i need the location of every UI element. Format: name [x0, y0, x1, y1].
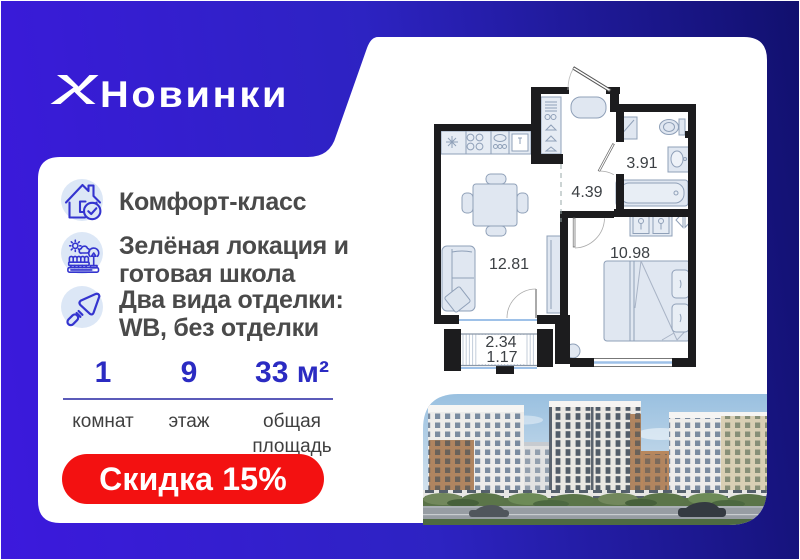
svg-text:10.98: 10.98 [610, 245, 650, 262]
svg-text:1.17: 1.17 [486, 349, 517, 366]
svg-text:3.91: 3.91 [626, 155, 657, 172]
svg-text:4.39: 4.39 [571, 184, 602, 201]
svg-text:12.81: 12.81 [489, 256, 529, 273]
